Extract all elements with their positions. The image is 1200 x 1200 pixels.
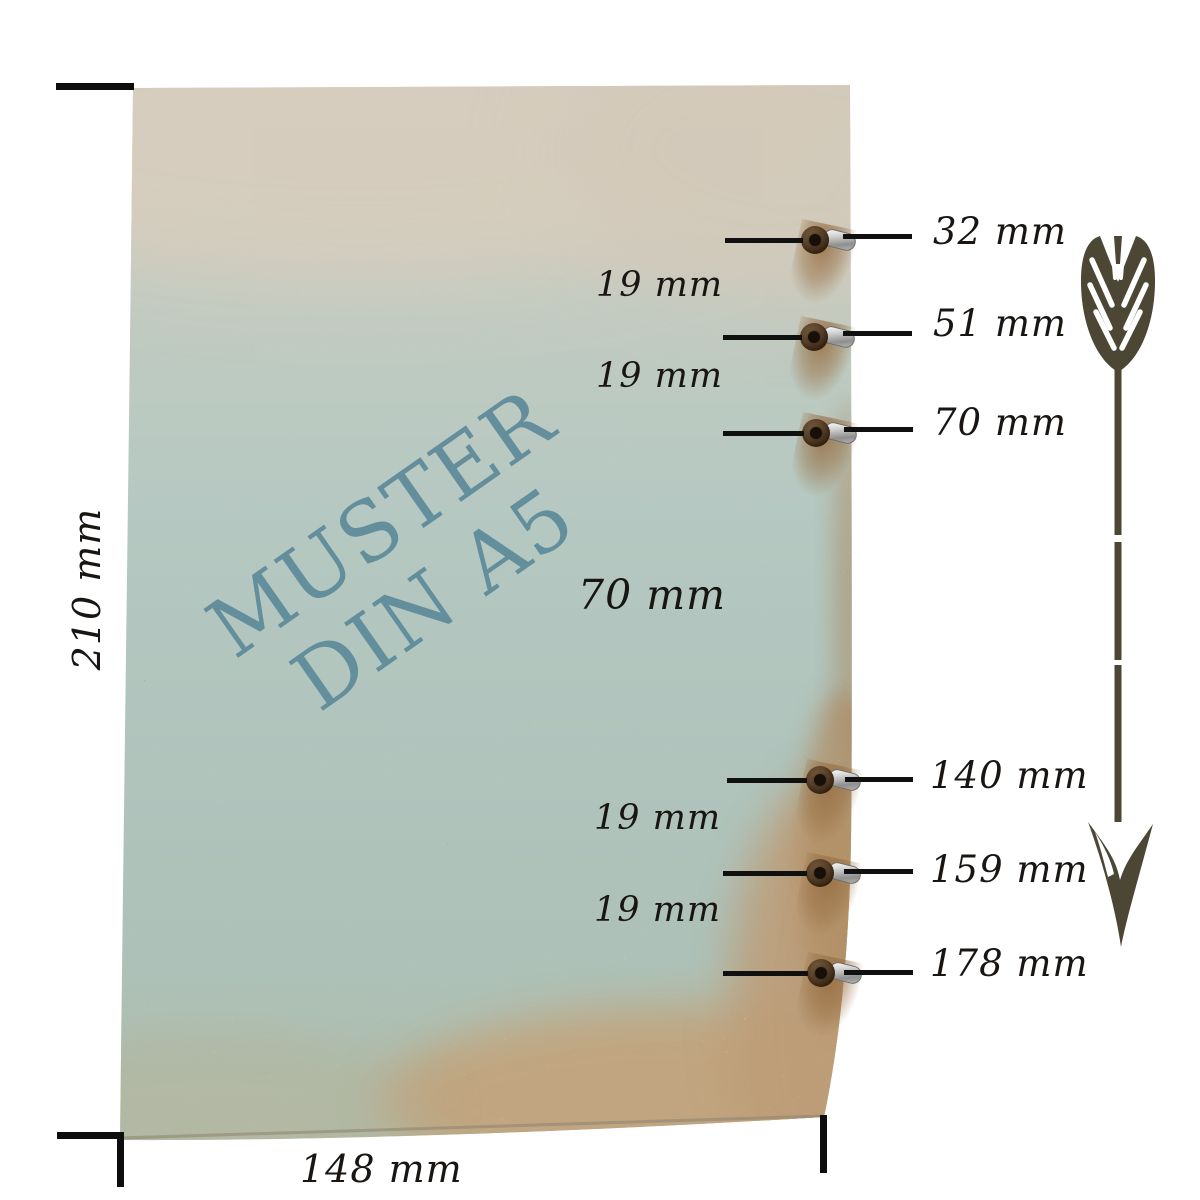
dimension-tick-top-left	[56, 83, 134, 90]
eyelet-hole	[814, 867, 826, 879]
height-dimension-label: 210 mm	[66, 504, 110, 674]
hole-spacing-label: 19 mm	[596, 265, 723, 305]
leader-line-right-6	[844, 970, 913, 975]
hole-spacing-label: 19 mm	[594, 890, 721, 930]
diagram-canvas: MUSTER DIN A5	[0, 0, 1200, 1200]
leader-line-right-2	[843, 331, 912, 336]
leader-line-right-3	[844, 427, 913, 432]
eyelet-hole	[810, 427, 822, 439]
dimension-tick-bottom-left-h	[57, 1132, 121, 1139]
hole-spacing-label: 19 mm	[594, 798, 721, 838]
leader-line-right-5	[844, 869, 913, 874]
dimension-tick-bottom-left-v	[117, 1132, 124, 1187]
eyelet-hole	[808, 331, 820, 343]
down-measurement-arrow-icon	[1056, 230, 1176, 955]
eyelet-hole	[809, 234, 821, 246]
hole-position-label: 32 mm	[933, 211, 1067, 254]
leader-line-left-6	[723, 971, 808, 976]
eyelet-hole	[814, 774, 826, 786]
dimension-tick-bottom-right	[820, 1115, 827, 1173]
leader-line-left-5	[723, 871, 807, 876]
hole-spacing-label: 19 mm	[596, 356, 723, 396]
leader-line-left-3	[723, 431, 804, 436]
width-dimension-label: 148 mm	[300, 1148, 463, 1192]
leader-line-right-4	[845, 777, 913, 782]
leader-line-left-4	[727, 778, 807, 783]
hole-spacing-label: 70 mm	[578, 572, 726, 619]
leader-line-left-2	[723, 335, 802, 340]
leader-line-left-1	[725, 238, 803, 243]
hole-position-label: 51 mm	[933, 303, 1067, 346]
hole-position-label: 70 mm	[933, 402, 1067, 445]
leader-line-right-1	[843, 234, 912, 239]
eyelet-hole	[815, 967, 827, 979]
